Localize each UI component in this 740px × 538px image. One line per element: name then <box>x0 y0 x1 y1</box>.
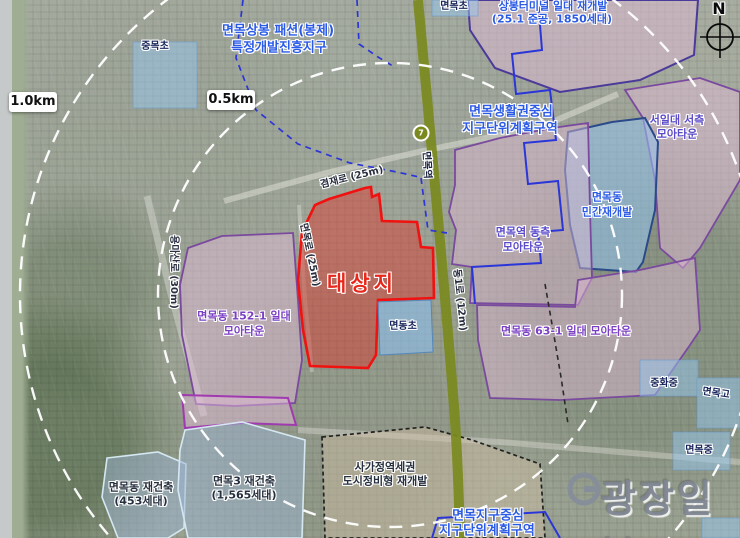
yongmasan-road-label: 용마산로 (30m) <box>168 235 178 309</box>
moatown-152-label-line2: 모아타운 <box>224 326 264 337</box>
rebuild-1565-label-line1: 면목3 재건축 <box>213 476 275 487</box>
living-center-label-line1: 면목생활권중심 <box>469 106 553 119</box>
special-zone-label-line2: 특정개발진흥지구 <box>231 42 327 55</box>
newspaper-watermark: 광장일보 <box>601 468 740 538</box>
map-overlay-svg <box>0 0 740 538</box>
sagajeong-redev-label-line1: 사가정역세권 <box>355 462 416 473</box>
rebuild-453-label-line2: (453세대) <box>114 496 167 507</box>
compass-north-label: N <box>712 1 725 17</box>
aerial-planning-map: 면목상봉 패션(봉제) 특정개발진흥지구 상봉터미널 일대 재개발 (25.1 … <box>0 0 740 538</box>
district-center-label-line2: 지구단위계획구역 <box>439 525 535 538</box>
blue-dashed-segment-a <box>357 0 396 68</box>
completed-apt-label-line2: (25.1 준공, 1850세대) <box>492 14 612 25</box>
moatown-63-label: 면목동 63-1 일대 모아타운 <box>501 326 631 337</box>
scale-05km-box: 0.5km <box>207 90 255 110</box>
newspaper-logo-icon <box>570 475 599 503</box>
living-center-label-line2: 지구단위계획구역 <box>462 123 558 136</box>
subway-line7-badge-icon: 7 <box>413 125 430 142</box>
private-redev-label-line1: 면목동 <box>592 192 622 203</box>
compass-icon <box>700 16 740 58</box>
private-redev-label-line2: 민간재개발 <box>582 207 633 218</box>
myeonmok-middle-label: 면목중 <box>685 446 713 456</box>
rebuild-1565-label-line2: (1,565세대) <box>211 490 276 501</box>
completed-apt-label-line1: 상봉터미널 일대 재개발 <box>499 1 608 12</box>
target-site-label: 대상지 <box>327 274 397 295</box>
myeonmok-elem-label: 면목초 <box>440 2 468 12</box>
jungmok-elem-label: 중목초 <box>141 42 169 52</box>
myeonmok-station-label: 면목역 <box>420 151 431 179</box>
moatown-152-label-line1: 면목동 152-1 일대 <box>197 311 290 322</box>
sagajeong-redev-label-line2: 도시정비형 재개발 <box>343 476 428 487</box>
myeondong-elem-label: 면동초 <box>389 322 417 332</box>
moatown-seoil-label-line2: 모아타운 <box>657 129 697 140</box>
junghwa-middle-label: 중화중 <box>650 379 678 389</box>
moatown-seoil-label-line1: 서일대 서측 <box>650 115 704 126</box>
district-center-label-line1: 면목지구중심 <box>452 510 524 523</box>
scale-1km-box: 1.0km <box>9 92 57 112</box>
moatown-east-label-line2: 모아타운 <box>503 242 543 253</box>
moatown-east-label-line1: 면목역 동측 <box>496 227 550 238</box>
rebuild-453-label-line1: 면목동 재건축 <box>109 482 174 493</box>
special-zone-label-line1: 면목상봉 패션(봉제) <box>222 25 334 38</box>
